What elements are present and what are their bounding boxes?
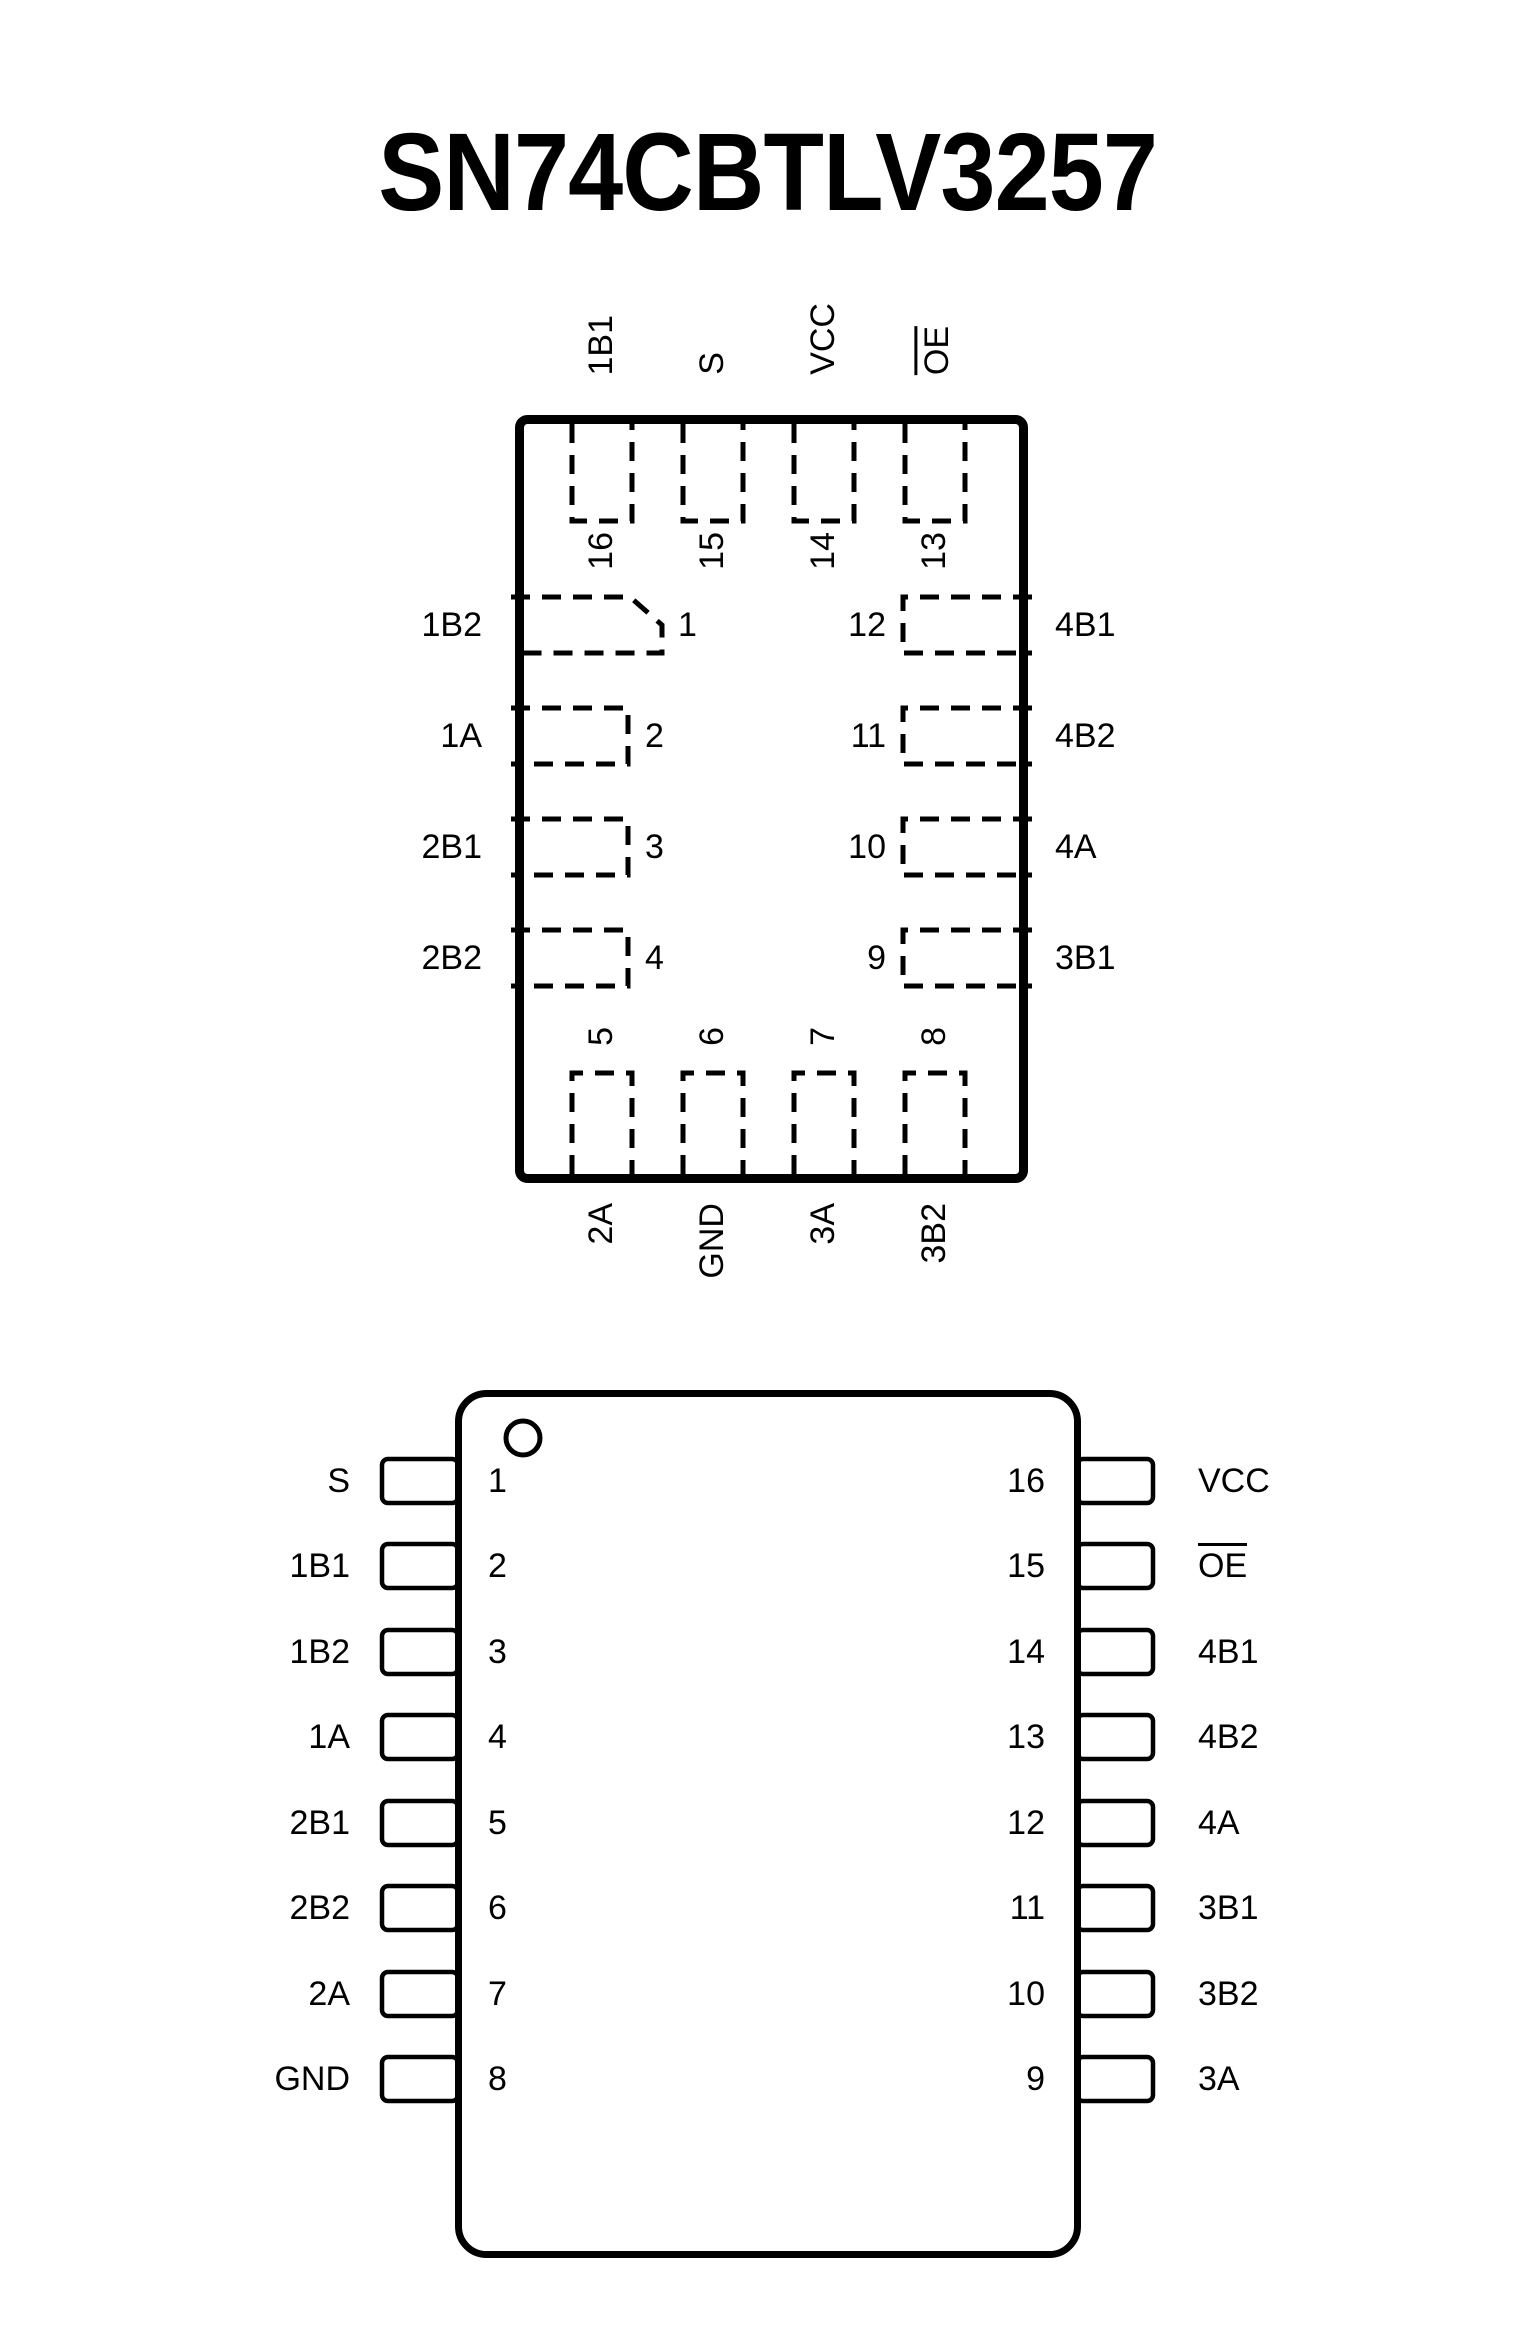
qfn-pin16-number: 16 <box>583 532 620 570</box>
qfn-pin1-label: 1B2 <box>422 604 483 646</box>
qfn-pin5-number: 5 <box>583 1027 620 1046</box>
dip-pin15-label: OE <box>1198 1545 1247 1587</box>
qfn-bottom-label-wrap: 2A <box>577 1203 627 1245</box>
qfn-pin16-label: 1B1 <box>583 315 620 376</box>
qfn-pin4-number: 4 <box>645 937 664 979</box>
qfn-pin1-number: 1 <box>678 604 697 646</box>
dip-pin14-number: 14 <box>1007 1631 1045 1673</box>
dip-stub-12 <box>1077 1801 1153 1845</box>
dip-stub-13 <box>1077 1715 1153 1759</box>
qfn-pin14-label: VCC <box>805 303 842 375</box>
dip-stub-11 <box>1077 1886 1153 1930</box>
dip-pin13-number: 13 <box>1007 1716 1045 1758</box>
dip-stub-3 <box>382 1630 458 1674</box>
dip-stub-8 <box>382 2057 458 2101</box>
dip-stub-10 <box>1077 1972 1153 2016</box>
qfn-bottom-num-wrap: 5 <box>577 1027 627 1046</box>
qfn-pin9-label: 3B1 <box>1055 937 1116 979</box>
dip-pin6-label: 2B2 <box>290 1887 351 1929</box>
dip-pin1-label: S <box>327 1460 350 1502</box>
dip-stub-4 <box>382 1715 458 1759</box>
dip-pin3-label: 1B2 <box>290 1631 351 1673</box>
dip-pin4-number: 4 <box>488 1716 507 1758</box>
qfn-bottom-num-wrap: 7 <box>799 1027 849 1046</box>
qfn-pin7-number: 7 <box>805 1027 842 1046</box>
qfn-pin13-number: 13 <box>916 532 953 570</box>
dip-pin10-number: 10 <box>1007 1973 1045 2015</box>
dip-pin10-label: 3B2 <box>1198 1973 1259 2015</box>
qfn-pin5-label: 2A <box>583 1203 620 1245</box>
qfn-pin2-label: 1A <box>440 715 482 757</box>
dip-pin13-label: 4B2 <box>1198 1716 1259 1758</box>
qfn-pin3-number: 3 <box>645 826 664 868</box>
dip-pin9-number: 9 <box>1026 2058 1045 2100</box>
qfn-pin13-label-oe-overline: OE <box>914 326 956 375</box>
dip-pin16-number: 16 <box>1007 1460 1045 1502</box>
qfn-pin15-label: S <box>694 352 731 375</box>
qfn-bottom-num-wrap: 8 <box>910 1027 960 1046</box>
qfn-pin8-number: 8 <box>916 1027 953 1046</box>
dip-pin4-label: 1A <box>308 1716 350 1758</box>
qfn-pin14-number: 14 <box>805 532 842 570</box>
qfn-top-label-wrap: VCC <box>799 303 849 375</box>
dip-pin11-label: 3B1 <box>1198 1887 1259 1929</box>
dip-pin5-number: 5 <box>488 1802 507 1844</box>
qfn-top-num-wrap: 14 <box>799 532 849 570</box>
qfn-pin10-number: 10 <box>848 826 886 868</box>
dip-pin1-indicator-circle <box>506 1421 540 1455</box>
dip-pin16-label: VCC <box>1198 1460 1270 1502</box>
dip-stub-15 <box>1077 1544 1153 1588</box>
qfn-pin12-label: 4B1 <box>1055 604 1116 646</box>
dip-pin7-label: 2A <box>308 1973 350 2015</box>
qfn-bottom-label-wrap: 3B2 <box>910 1203 960 1264</box>
qfn-pin7-label: 3A <box>805 1203 842 1245</box>
dip-pin15-number: 15 <box>1007 1545 1045 1587</box>
qfn-pin8-label: 3B2 <box>916 1203 953 1264</box>
qfn-pin6-label: GND <box>694 1203 731 1279</box>
dip-pin5-label: 2B1 <box>290 1802 351 1844</box>
dip-stub-2 <box>382 1544 458 1588</box>
qfn-pin2-number: 2 <box>645 715 664 757</box>
qfn-pin11-number: 11 <box>851 715 886 757</box>
datasheet-page: SN74CBTLV3257 <box>0 0 1535 2342</box>
dip-pin3-number: 3 <box>488 1631 507 1673</box>
dip-stub-5 <box>382 1801 458 1845</box>
dip-pin8-number: 8 <box>488 2058 507 2100</box>
dip-stub-6 <box>382 1886 458 1930</box>
qfn-top-label-wrap: OE <box>910 326 960 375</box>
dip-stub-16 <box>1077 1459 1153 1503</box>
qfn-top-num-wrap: 16 <box>577 532 627 570</box>
qfn-pin9-number: 9 <box>867 937 886 979</box>
pinout-graphics <box>0 0 1535 2342</box>
dip-stub-9 <box>1077 2057 1153 2101</box>
qfn-pin10-label: 4A <box>1055 826 1097 868</box>
dip-pin14-label: 4B1 <box>1198 1631 1259 1673</box>
qfn-bottom-num-wrap: 6 <box>688 1027 738 1046</box>
dip-pin12-number: 12 <box>1007 1802 1045 1844</box>
dip-stub-14 <box>1077 1630 1153 1674</box>
dip-pin6-number: 6 <box>488 1887 507 1929</box>
dip-pin12-label: 4A <box>1198 1802 1240 1844</box>
qfn-bottom-label-wrap: GND <box>688 1203 738 1279</box>
qfn-pin15-number: 15 <box>694 532 731 570</box>
dip-pin8-label: GND <box>274 2058 350 2100</box>
qfn-pin12-number: 12 <box>848 604 886 646</box>
qfn-pin3-label: 2B1 <box>422 826 483 868</box>
qfn-top-label-wrap: S <box>688 352 738 375</box>
dip-pin15-label-oe-overline: OE <box>1198 1543 1247 1585</box>
qfn-pin4-label: 2B2 <box>422 937 483 979</box>
qfn-top-num-wrap: 13 <box>910 532 960 570</box>
dip-pin2-label: 1B1 <box>290 1545 351 1587</box>
dip-pin7-number: 7 <box>488 1973 507 2015</box>
qfn-top-label-wrap: 1B1 <box>577 315 627 376</box>
dip-package-outline <box>459 1394 1078 2255</box>
qfn-pin6-number: 6 <box>694 1027 731 1046</box>
qfn-pin11-label: 4B2 <box>1055 715 1116 757</box>
dip-pin9-label: 3A <box>1198 2058 1240 2100</box>
dip-stub-1 <box>382 1459 458 1503</box>
dip-pin2-number: 2 <box>488 1545 507 1587</box>
dip-pin1-number: 1 <box>488 1460 507 1502</box>
dip-stub-7 <box>382 1972 458 2016</box>
qfn-top-num-wrap: 15 <box>688 532 738 570</box>
dip-pin11-number: 11 <box>1010 1887 1045 1929</box>
qfn-bottom-label-wrap: 3A <box>799 1203 849 1245</box>
